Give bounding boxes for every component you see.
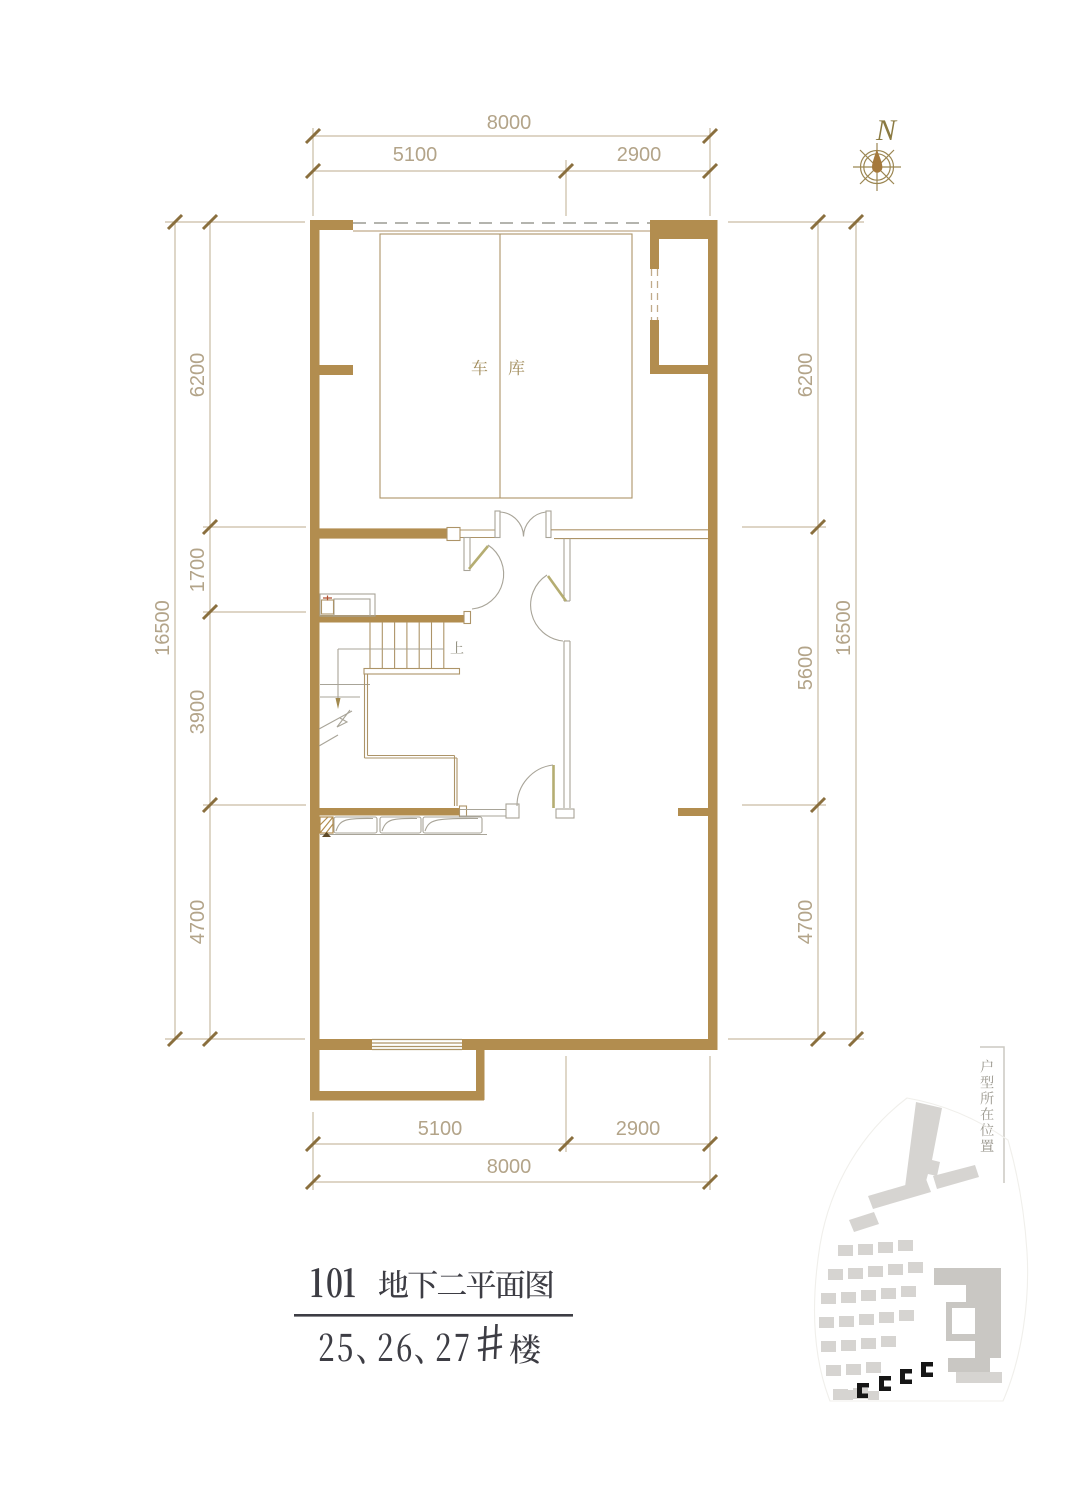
svg-text:3900: 3900 [187,690,209,735]
svg-text:16500: 16500 [152,600,174,656]
svg-text:2900: 2900 [616,1118,661,1140]
svg-text:16500: 16500 [833,600,855,656]
svg-text:5100: 5100 [418,1118,463,1140]
svg-text:5600: 5600 [795,646,817,691]
svg-text:6200: 6200 [795,353,817,398]
svg-text:6200: 6200 [187,353,209,398]
svg-text:4700: 4700 [187,900,209,945]
svg-text:2900: 2900 [617,144,662,166]
svg-text:8000: 8000 [487,1156,532,1178]
svg-text:8000: 8000 [487,112,532,134]
svg-text:1700: 1700 [187,548,209,593]
svg-text:5100: 5100 [393,144,438,166]
svg-text:4700: 4700 [795,900,817,945]
